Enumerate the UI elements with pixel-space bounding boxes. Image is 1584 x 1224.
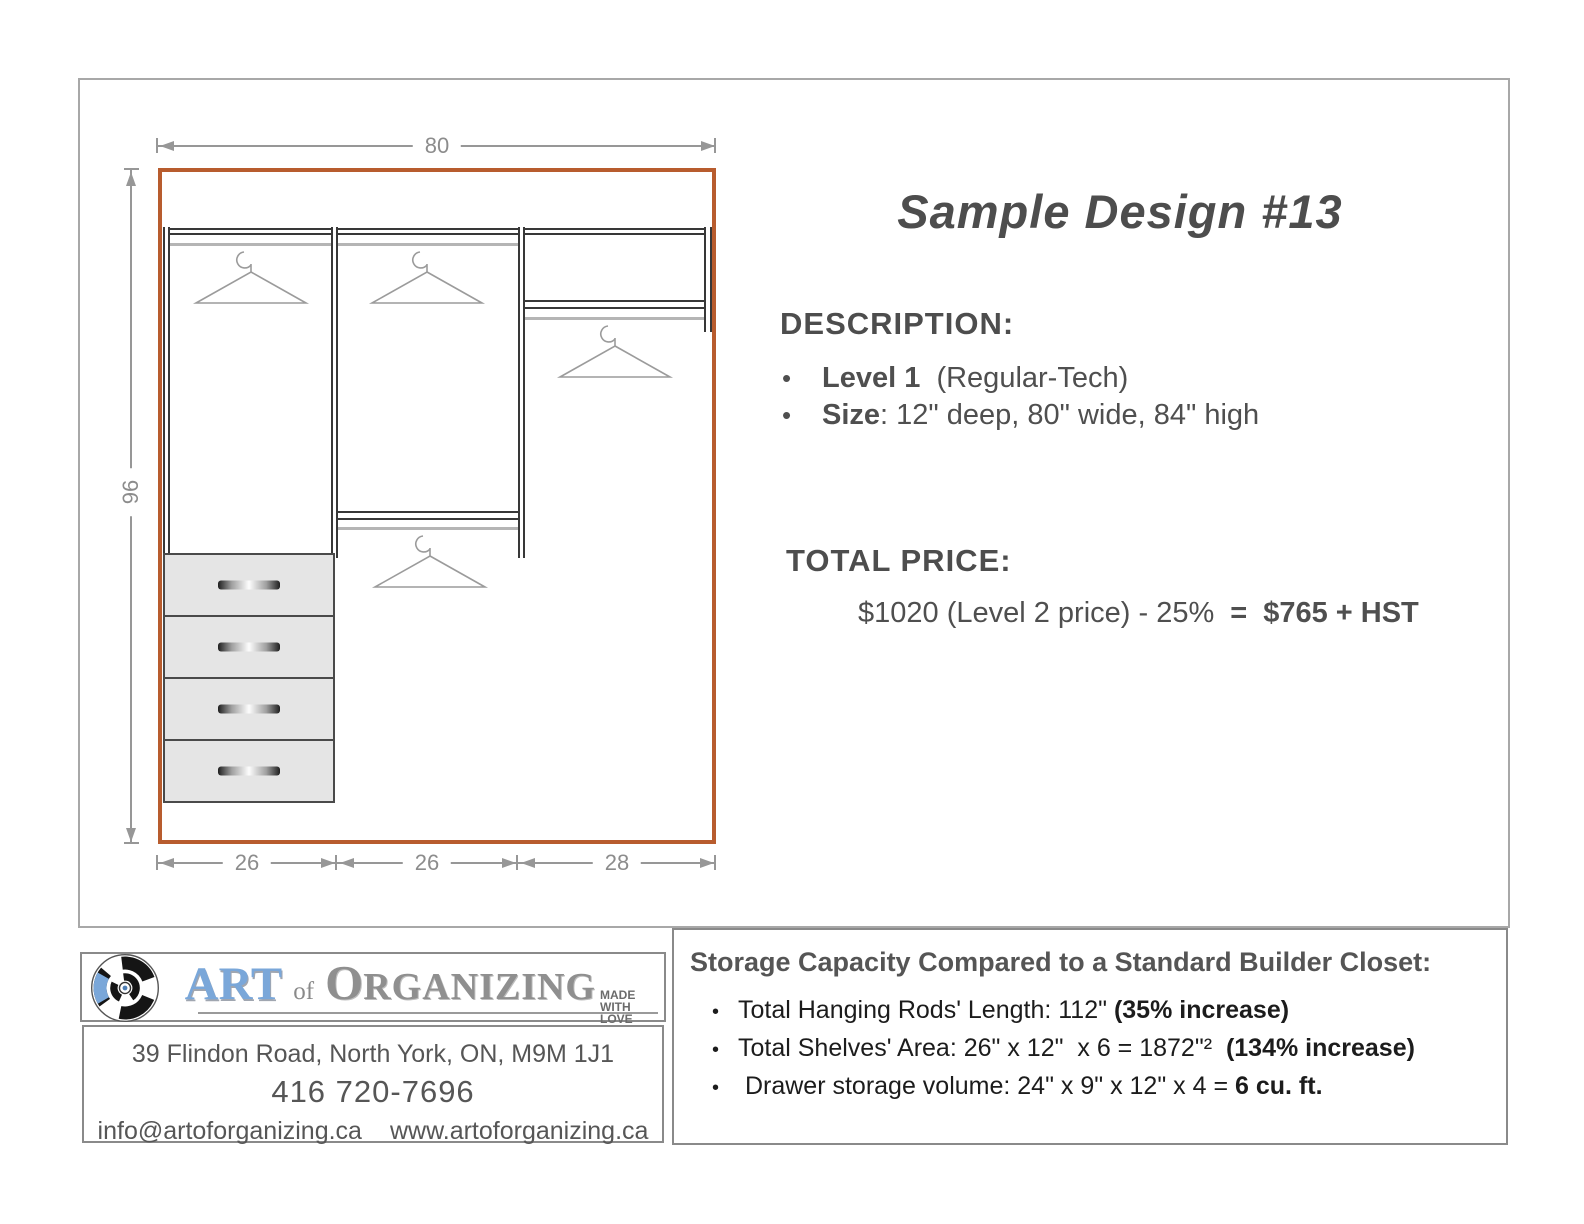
bullet-icon: • (712, 1032, 738, 1068)
dimension-tick (156, 138, 158, 153)
dimension-tick (516, 855, 518, 870)
description-item-text: (Regular-Tech) (920, 362, 1128, 394)
drawer (165, 679, 333, 741)
description-item-bold: Level 1 (822, 362, 920, 394)
storage-capacity-heading: Storage Capacity Compared to a Standard … (690, 947, 1506, 978)
dimension-arrow-down (126, 828, 136, 842)
price-calculation: $1020 (Level 2 price) - 25% (858, 597, 1214, 629)
wordmark-organizing-rest: RGANIZING (363, 965, 596, 1009)
drawer (165, 617, 333, 679)
description-item-bold: Size (822, 399, 880, 431)
logo-banner: ART of O RGANIZING MADE WITH LOVE (80, 952, 666, 1022)
email-address: info@artoforganizing.ca (98, 1117, 362, 1145)
left-side-panel (163, 227, 170, 553)
equals-sign: = (1230, 597, 1247, 629)
drawer-handle-icon (218, 643, 280, 652)
dimension-label-width: 80 (413, 133, 461, 159)
wordmark-underline (198, 1012, 658, 1014)
hanger-icon (191, 245, 311, 307)
storage-item-bold: (134% increase) (1226, 1034, 1415, 1062)
description-heading: DESCRIPTION: (780, 306, 1014, 342)
bullet-icon: • (712, 994, 738, 1030)
dimension-arrow (340, 858, 354, 868)
dimension-label-section2: 26 (403, 850, 451, 876)
wordmark-of: of (293, 978, 314, 1006)
dimension-label-section3: 28 (593, 850, 641, 876)
dimension-arrow (321, 858, 335, 868)
dimension-arrow (521, 858, 535, 868)
description-item: • Size: 12" deep, 80" wide, 84" high (782, 397, 1259, 434)
dimension-label-section1: 26 (223, 850, 271, 876)
dimension-tick (714, 855, 716, 870)
company-logo-icon (88, 951, 162, 1025)
storage-item-bold: (35% increase) (1114, 996, 1289, 1024)
dimension-tick (124, 168, 139, 170)
street-address: 39 Flindon Road, North York, ON, M9M 1J1 (84, 1040, 662, 1069)
contact-links: info@artoforganizing.cawww.artoforganizi… (84, 1117, 662, 1146)
tagline: MADE WITH LOVE (600, 989, 635, 1025)
drawer-handle-icon (218, 767, 280, 776)
drawer-stack (163, 553, 335, 803)
storage-item-bold: 6 cu. ft. (1235, 1072, 1323, 1100)
drawer-handle-icon (218, 581, 280, 590)
top-shelf (163, 228, 711, 235)
dimension-tick (335, 855, 337, 870)
storage-item: • Total Hanging Rods' Length: 112" (35% … (712, 992, 1506, 1030)
description-item-text: : 12" deep, 80" wide, 84" high (880, 399, 1259, 431)
storage-item-text: Total Shelves' Area: 26" x 12" x 6 = 187… (738, 1034, 1226, 1062)
bullet-icon: • (782, 397, 822, 434)
hanger-icon (370, 529, 490, 591)
final-price: $765 + HST (1263, 597, 1419, 629)
page-title: Sample Design #13 (800, 184, 1440, 239)
phone-number: 416 720-7696 (84, 1074, 662, 1110)
storage-capacity-list: • Total Hanging Rods' Length: 112" (35% … (712, 992, 1506, 1106)
description-item: • Level 1 (Regular-Tech) (782, 360, 1259, 397)
dimension-arrow (700, 858, 714, 868)
dimension-arrow-left (160, 141, 174, 151)
right-side-panel (704, 227, 712, 332)
dimension-arrow (160, 858, 174, 868)
wordmark-organizing-initial: O (325, 954, 363, 1011)
drawer (165, 741, 333, 801)
dimension-arrow-right (701, 141, 715, 151)
dimension-arrow-up (126, 172, 136, 186)
contact-box: 39 Flindon Road, North York, ON, M9M 1J1… (82, 1025, 664, 1143)
divider-panel-2 (518, 227, 525, 558)
right-cubby-shelf (525, 300, 704, 309)
price-line: $1020 (Level 2 price) - 25%=$765 + HST (858, 597, 1419, 630)
dimension-label-height: 96 (118, 468, 144, 516)
dimension-arrow (502, 858, 516, 868)
storage-item-text: Total Hanging Rods' Length: 112" (738, 996, 1114, 1024)
storage-item: • Drawer storage volume: 24" x 9" x 12" … (712, 1068, 1506, 1106)
bullet-icon: • (712, 1070, 738, 1106)
website-url: www.artoforganizing.ca (390, 1117, 648, 1145)
middle-lower-shelf (338, 511, 518, 520)
dimension-tick (156, 855, 158, 870)
description-list: • Level 1 (Regular-Tech) • Size: 12" dee… (782, 360, 1259, 434)
dimension-tick (124, 842, 139, 844)
storage-capacity-box: Storage Capacity Compared to a Standard … (672, 928, 1508, 1145)
bullet-icon: • (782, 360, 822, 397)
hanger-icon (367, 245, 487, 307)
total-price-heading: TOTAL PRICE: (786, 543, 1012, 579)
divider-panel-1 (331, 227, 338, 558)
hanger-icon (555, 319, 675, 381)
drawer-handle-icon (218, 705, 280, 714)
storage-item: • Total Shelves' Area: 26" x 12" x 6 = 1… (712, 1030, 1506, 1068)
storage-item-text: Drawer storage volume: 24" x 9" x 12" x … (738, 1072, 1235, 1100)
wordmark-art: ART (185, 957, 283, 1011)
drawer (165, 555, 333, 617)
